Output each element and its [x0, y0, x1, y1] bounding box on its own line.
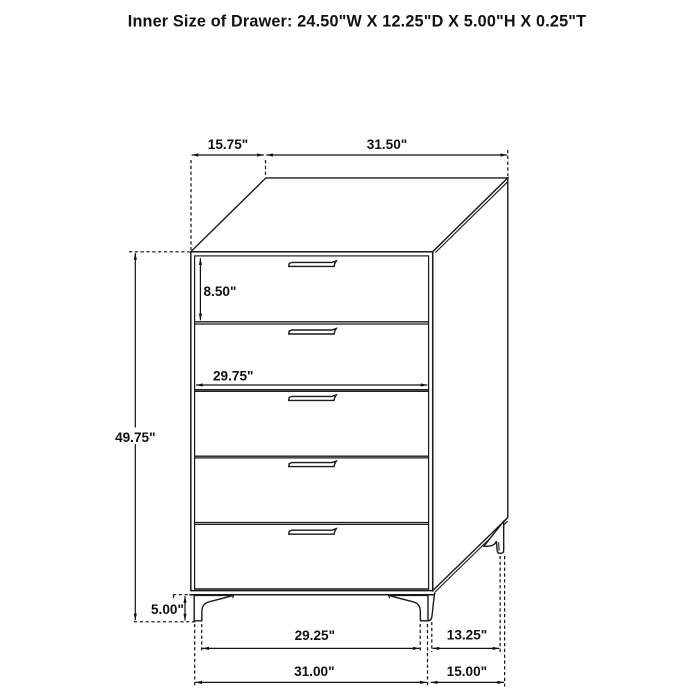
svg-text:31.00": 31.00"	[294, 664, 334, 679]
svg-text:49.75": 49.75"	[115, 430, 155, 445]
svg-text:29.25": 29.25"	[295, 628, 335, 643]
svg-text:5.00": 5.00"	[151, 602, 184, 617]
svg-text:15.75": 15.75"	[208, 137, 248, 152]
svg-text:31.50": 31.50"	[367, 137, 407, 152]
svg-text:29.75": 29.75"	[213, 369, 253, 384]
svg-text:Inner Size of Drawer: 24.50"W: Inner Size of Drawer: 24.50"W X 12.25"D …	[128, 12, 586, 30]
svg-text:15.00": 15.00"	[447, 664, 487, 679]
svg-text:13.25": 13.25"	[447, 628, 487, 643]
svg-text:8.50": 8.50"	[204, 284, 237, 299]
